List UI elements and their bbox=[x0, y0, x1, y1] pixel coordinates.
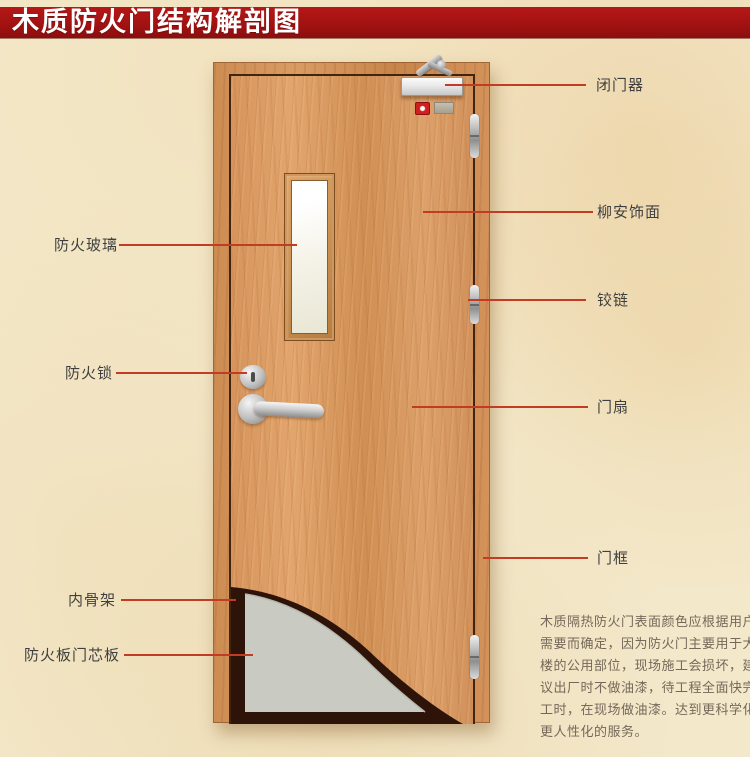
description-paragraph: 木质隔热防火门表面颜色应根据用户 需要而确定，因为防火门主要用于大 楼的公用部位… bbox=[540, 612, 750, 744]
cutaway-section bbox=[231, 581, 474, 724]
description-line: 木质隔热防火门表面颜色应根据用户 bbox=[540, 612, 750, 634]
label-inner-skeleton: 内骨架 bbox=[68, 591, 116, 609]
door-leaf bbox=[229, 74, 475, 724]
page-title: 木质防火门结构解剖图 bbox=[0, 7, 750, 38]
description-line: 更人性化的服务。 bbox=[540, 722, 750, 744]
callout-line-inner-skeleton bbox=[121, 599, 236, 601]
description-line: 议出厂时不做油漆，待工程全面快完 bbox=[540, 678, 750, 700]
label-door-frame: 门框 bbox=[597, 549, 629, 567]
glass-window-frame bbox=[284, 173, 335, 341]
callout-line-door-frame bbox=[483, 557, 588, 559]
label-door-leaf: 门扇 bbox=[597, 398, 629, 416]
core-panel-shape bbox=[245, 594, 425, 712]
hinge-middle bbox=[470, 285, 479, 324]
description-line: 工时，在现场做油漆。达到更科学化 bbox=[540, 700, 750, 722]
label-fire-glass: 防火玻璃 bbox=[54, 236, 118, 254]
page-background: 木质防火门结构解剖图 bbox=[0, 0, 750, 757]
door-closer bbox=[401, 77, 463, 96]
callout-line-door-closer bbox=[445, 84, 586, 86]
label-hinge: 铰链 bbox=[597, 291, 629, 309]
label-door-closer: 闭门器 bbox=[596, 76, 644, 94]
hinge-top bbox=[470, 114, 479, 158]
callout-line-door-leaf bbox=[412, 406, 588, 408]
fire-rating-badge bbox=[415, 102, 430, 115]
callout-line-fire-glass bbox=[119, 244, 297, 246]
callout-line-veneer bbox=[423, 211, 593, 213]
certification-tag bbox=[434, 102, 454, 114]
label-fire-lock: 防火锁 bbox=[65, 364, 113, 382]
label-core-panel: 防火板门芯板 bbox=[24, 646, 120, 664]
fire-glass bbox=[291, 180, 328, 334]
callout-line-core-panel bbox=[124, 654, 253, 656]
door-frame bbox=[213, 62, 490, 723]
description-line: 楼的公用部位，现场施工会损坏，建 bbox=[540, 656, 750, 678]
description-line: 需要而确定，因为防火门主要用于大 bbox=[540, 634, 750, 656]
hinge-bottom bbox=[470, 635, 479, 679]
label-veneer: 柳安饰面 bbox=[597, 203, 661, 221]
title-banner: 木质防火门结构解剖图 bbox=[0, 7, 750, 38]
lock-cylinder bbox=[240, 365, 266, 389]
door-closer-joint bbox=[437, 60, 446, 69]
callout-line-hinge bbox=[468, 299, 586, 301]
callout-line-fire-lock bbox=[116, 372, 247, 374]
